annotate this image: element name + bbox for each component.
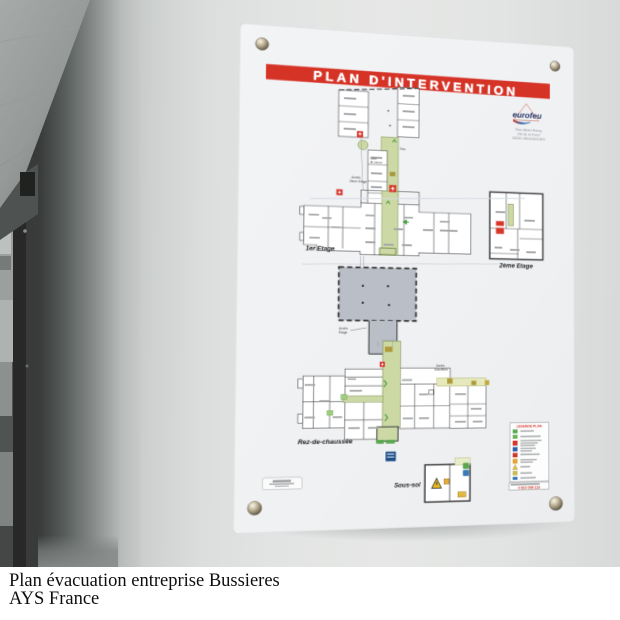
svg-text:2ème Etage: 2ème Etage	[349, 179, 367, 183]
svg-text:de pause: de pause	[370, 160, 383, 164]
svg-text:Sous-sol: Sous-sol	[394, 482, 420, 489]
svg-text:0 810 098 119: 0 810 098 119	[518, 485, 540, 489]
svg-text:LEGENDE PLAN: LEGENDE PLAN	[516, 424, 542, 428]
svg-text:Rez-de-chaussée: Rez-de-chaussée	[298, 438, 353, 446]
svg-text:chaufferie: chaufferie	[434, 368, 448, 372]
svg-text:1er Etage: 1er Etage	[306, 245, 335, 252]
svg-text:Esc.: Esc.	[400, 147, 406, 151]
svg-text:2ème Etage: 2ème Etage	[498, 263, 533, 270]
svg-text:Etage: Etage	[339, 331, 348, 335]
svg-text:eurofeu: eurofeu	[513, 110, 543, 121]
